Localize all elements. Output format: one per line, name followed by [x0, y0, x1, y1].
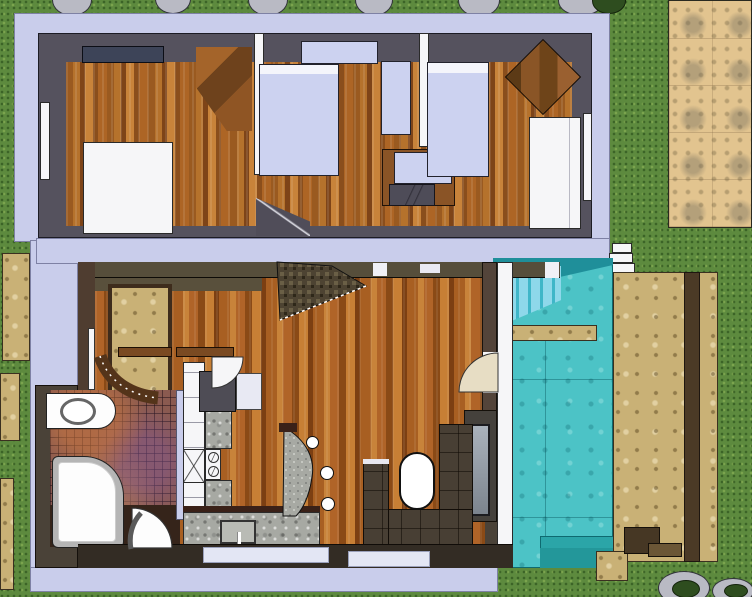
stone-paving-terrace [668, 0, 752, 228]
bar-stool [306, 436, 319, 449]
stepping-stone [0, 373, 20, 441]
roof-window [82, 46, 164, 63]
deck-timber-strip [684, 272, 700, 562]
bed-pillow [260, 65, 338, 74]
equipment-plank [648, 543, 682, 557]
burner-icon [208, 452, 219, 463]
pool-seam [545, 341, 546, 568]
stone-feature-window [108, 284, 172, 406]
desk-chair [389, 184, 435, 206]
basin [60, 398, 96, 425]
pool-side-wall-white [497, 262, 513, 568]
tall-cabinet [381, 61, 411, 135]
walkway-bottom-band [30, 567, 498, 592]
pool-step [612, 243, 632, 253]
bush-bottom-right-icon [672, 580, 700, 597]
pool-seam [513, 517, 613, 518]
oval-coffee-table [399, 452, 435, 510]
bar-stool [320, 466, 334, 480]
left-wall-window-ground [88, 328, 95, 390]
door-mat [348, 551, 430, 567]
shower-tray [58, 462, 116, 542]
window-desk [301, 41, 378, 64]
deck-stone-pad [596, 551, 628, 581]
sofa-arm-highlight [363, 459, 389, 464]
armchair [199, 371, 236, 412]
left-wall-window [40, 102, 50, 180]
cooktop [183, 449, 205, 483]
floor-plan-stage [0, 0, 752, 597]
patio-door-opening [483, 352, 498, 393]
sofa-left-arm [363, 463, 389, 548]
right-wall-window [583, 113, 592, 201]
pool-side-wall-upper [482, 262, 497, 432]
single-bed-middle [259, 64, 339, 176]
white-closet [529, 117, 581, 229]
double-bed [83, 142, 173, 234]
side-table [236, 373, 262, 410]
bed-pillow [428, 63, 488, 73]
top-wall-opening [545, 262, 559, 278]
stepping-stone [0, 478, 14, 590]
bar-stool [321, 497, 335, 511]
bush-bottom-right-2-icon [724, 584, 748, 597]
single-bed-right [427, 62, 489, 177]
burner-icon [208, 466, 219, 477]
pool-stone-deck [613, 272, 718, 562]
stepping-stone [2, 253, 30, 361]
top-wall-opening [373, 263, 387, 276]
console-shelf [176, 347, 234, 357]
door-mat [203, 547, 329, 563]
top-wall-notch [420, 264, 440, 273]
console-shelf [118, 347, 172, 357]
